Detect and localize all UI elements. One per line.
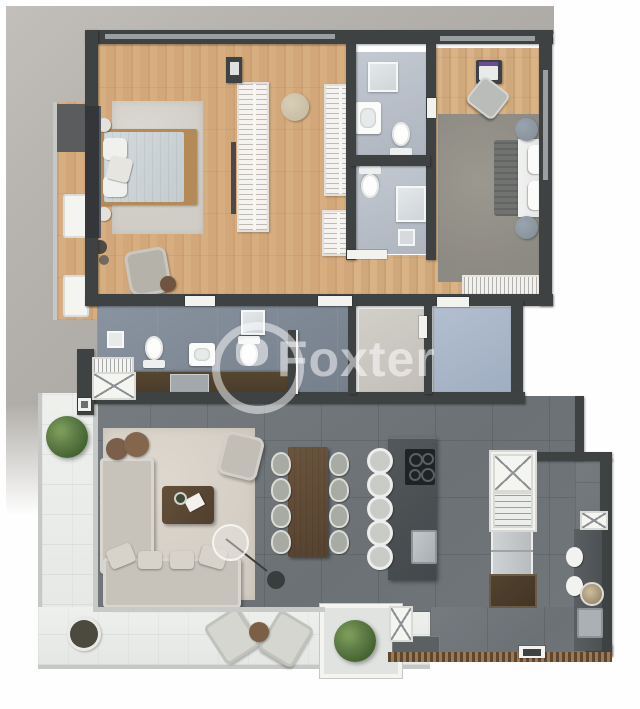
door-leaf-service — [419, 316, 427, 338]
window-bedroom2-right — [543, 70, 548, 180]
wall-kitchen-step — [575, 396, 584, 460]
service-toilet — [238, 336, 260, 366]
deck-edge-strip — [388, 652, 612, 662]
burner-4 — [421, 468, 435, 482]
palm-plant-left — [46, 416, 88, 458]
coffee-table-plant — [174, 492, 187, 505]
terrace-side-table — [249, 622, 269, 642]
dining-table — [288, 447, 328, 557]
bath2-drain — [398, 229, 415, 246]
wall-service-left — [348, 304, 356, 394]
door-threshold-closet — [318, 296, 352, 306]
laundry-room-floor — [431, 305, 517, 397]
powder-sink — [189, 343, 215, 366]
fridge-divider — [491, 550, 533, 552]
sofa-cushion-3 — [170, 551, 194, 569]
dining-chair-r1 — [329, 452, 349, 476]
kitchen-cabinet-wood — [489, 574, 537, 608]
toilet-tank — [238, 336, 260, 344]
round-planter — [70, 620, 98, 648]
master-decor-pot-2 — [99, 255, 109, 265]
toilet-bowl — [392, 122, 410, 146]
floor-lamp-shade — [212, 524, 249, 561]
bedroom2-nightstand-bottom — [515, 216, 538, 239]
toilet-bowl — [240, 342, 258, 366]
rack-rail — [253, 84, 256, 230]
burner-2 — [422, 453, 434, 465]
wall-powder-stub — [288, 330, 298, 394]
floor-lamp-base — [267, 571, 285, 589]
dining-chair-r4 — [329, 530, 349, 554]
door-threshold-terrace-inner — [523, 649, 541, 656]
island-stool-2 — [367, 472, 393, 498]
dining-chair-r2 — [329, 478, 349, 502]
closet-tv-panel — [231, 142, 236, 214]
hall-switch-box — [107, 331, 124, 348]
service-shower — [241, 310, 265, 335]
wall-left-upper — [85, 30, 98, 114]
right-vent-box — [580, 511, 608, 530]
counter-appliance — [577, 608, 603, 638]
living-pouf-2 — [124, 432, 149, 457]
burner-1 — [409, 453, 423, 467]
elevator-kitchen-icon — [493, 454, 533, 492]
door-threshold-bath1 — [427, 98, 436, 118]
toilet-tank — [143, 360, 165, 368]
bath2-shower — [396, 186, 426, 222]
island-stool-3 — [367, 496, 393, 522]
island-stool-5 — [367, 544, 393, 570]
rack-rail — [339, 86, 342, 194]
dining-chair-r3 — [329, 504, 349, 528]
dining-chair-l3 — [271, 504, 291, 528]
balcony-dark-unit — [57, 104, 87, 152]
powder-toilet — [143, 336, 165, 368]
door-threshold-bath2 — [347, 250, 387, 259]
toilet-bowl — [145, 336, 163, 360]
wall-step-right-mid — [511, 300, 523, 402]
bath1-toilet — [390, 122, 412, 156]
master-side-table — [160, 276, 176, 292]
closet-rack-1 — [237, 82, 269, 232]
bath1-sink — [355, 102, 381, 134]
exterior-concrete-left-fade — [6, 405, 42, 515]
floor-plan: Foxter — [0, 0, 640, 709]
master-wardrobe-dark — [85, 106, 101, 238]
suite-corridor-floor — [352, 255, 434, 298]
door-threshold-laundry — [437, 297, 469, 307]
wall-column-box-inner — [230, 62, 239, 75]
dining-chair-l4 — [271, 530, 291, 554]
sofa-cushion-2 — [138, 551, 162, 569]
door-threshold-master — [185, 296, 215, 306]
toilet-bowl — [361, 174, 379, 198]
fridge-unit — [491, 530, 533, 576]
counter-sink-1 — [566, 547, 583, 567]
wall-hall-bottom — [85, 392, 525, 404]
wall-bath-divider — [350, 155, 430, 166]
coffee-machine — [580, 582, 604, 606]
shaft-small-box-inner — [81, 401, 88, 408]
wall-bath-right — [426, 44, 436, 260]
window-top-bedroom2 — [440, 36, 535, 41]
burner-3 — [409, 469, 421, 481]
wall-bath-left — [346, 44, 356, 260]
island-stool-1 — [367, 448, 393, 474]
glass-wall-living-left — [93, 396, 98, 610]
dining-chair-l1 — [271, 452, 291, 476]
basin — [194, 348, 210, 362]
planter-plant — [334, 620, 376, 662]
toilet-tank — [359, 166, 381, 174]
terrace-pillar — [389, 606, 413, 642]
bath2-toilet — [359, 166, 381, 198]
bedroom2-bed-throw — [494, 140, 520, 216]
stairs-icon — [493, 492, 533, 528]
elevator-hall-icon — [92, 372, 136, 400]
glass-wall-living-bottom — [93, 607, 325, 612]
basin — [360, 108, 376, 127]
window-top-master — [105, 34, 335, 39]
closet-pouf — [281, 93, 309, 121]
island-stool-4 — [367, 520, 393, 546]
bedroom2-nightstand-top — [515, 118, 538, 141]
dining-chair-l2 — [271, 478, 291, 502]
rack-rail — [337, 212, 340, 254]
bath1-shower — [368, 62, 398, 92]
island-sink — [411, 530, 437, 564]
